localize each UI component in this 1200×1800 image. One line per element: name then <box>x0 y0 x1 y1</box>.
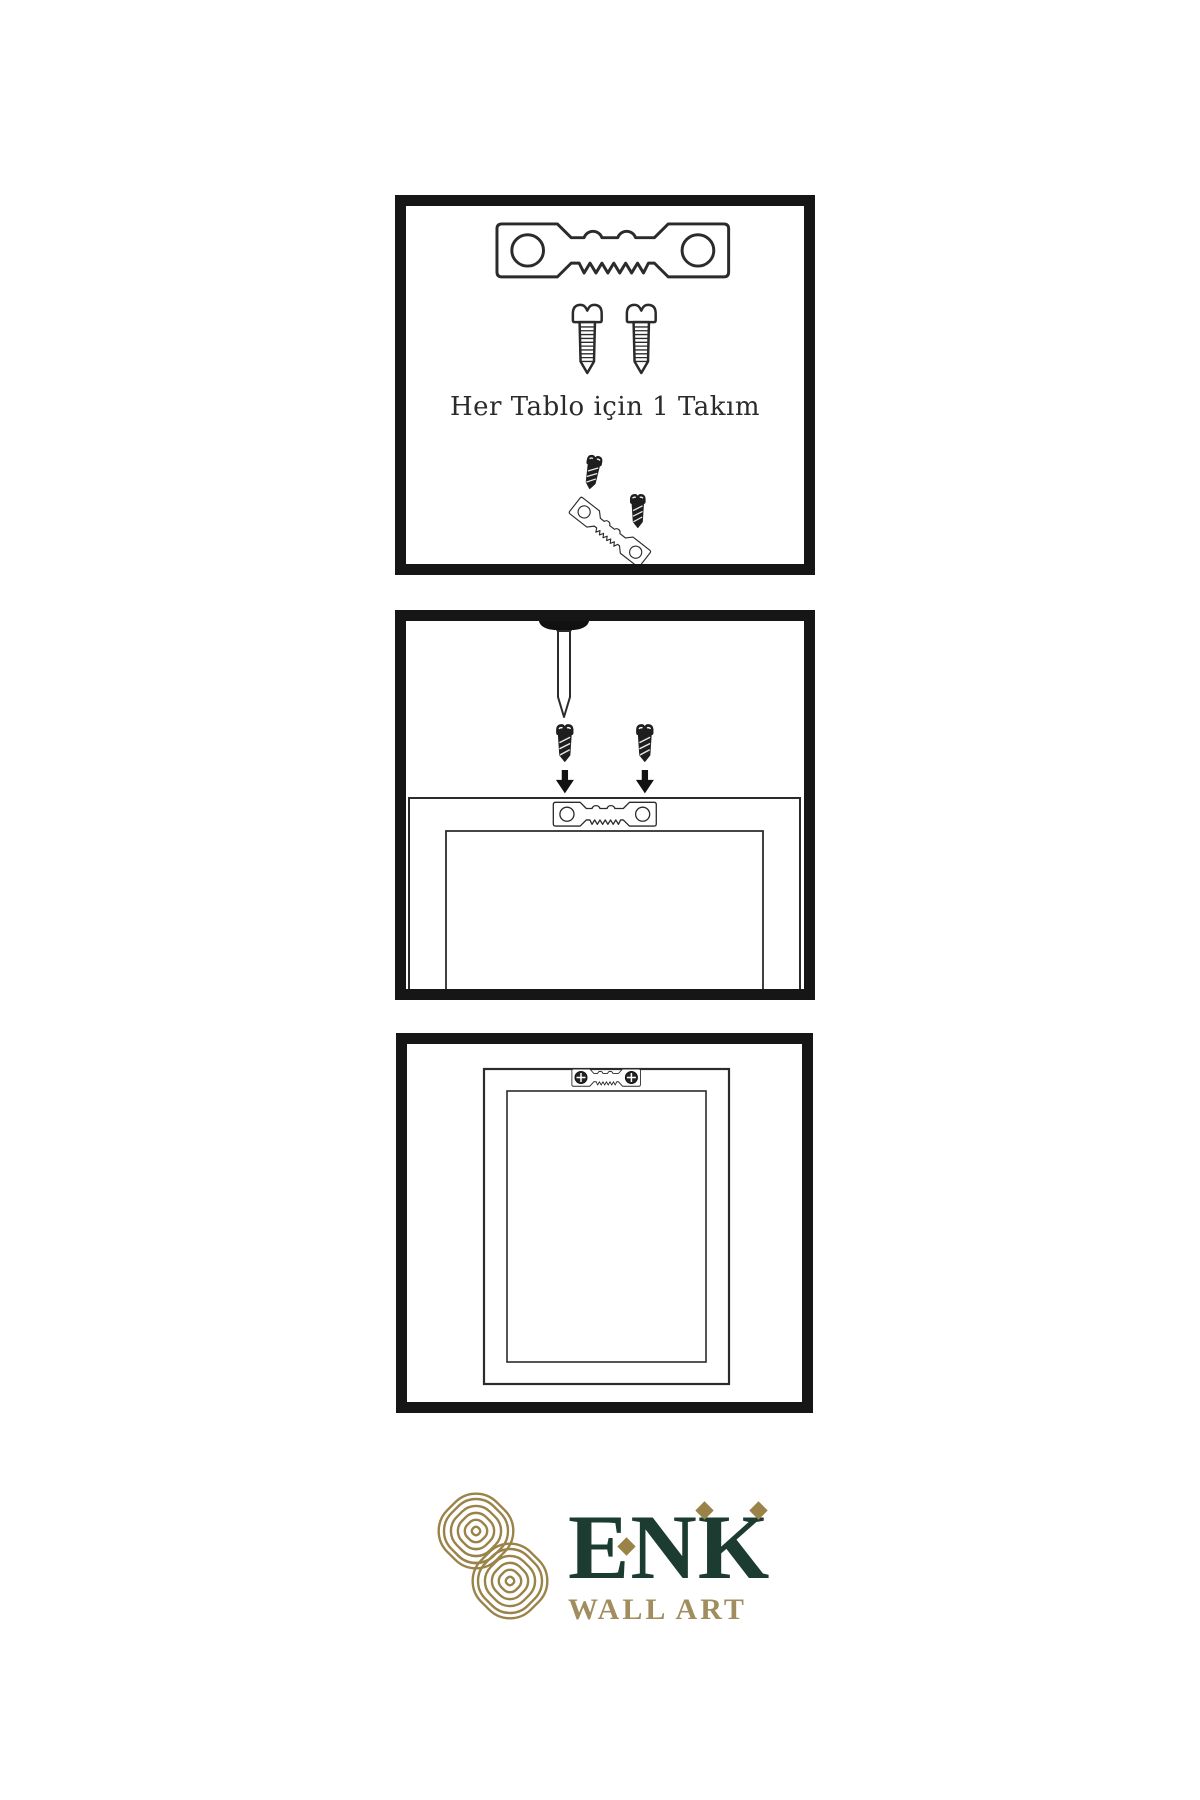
brand-logo: ENK WALL ART <box>430 1488 770 1627</box>
kit-caption: Her Tablo için 1 Takım <box>406 392 804 422</box>
panel-mounting-steps <box>395 610 815 1000</box>
frame-front-icon <box>484 1069 729 1384</box>
sawtooth-hanger-icon <box>497 224 729 277</box>
screw-icon <box>627 305 656 373</box>
dark-screw-icon <box>583 455 603 490</box>
dark-screw-icon <box>637 725 653 761</box>
panel-hardware-kit: Her Tablo için 1 Takım <box>395 195 815 575</box>
arrow-down-icon <box>636 770 654 793</box>
instruction-sheet: Her Tablo için 1 Takım <box>0 0 1200 1800</box>
frame-back-icon <box>409 798 800 989</box>
dark-screw-icon <box>631 495 645 528</box>
brand-text: ENK WALL ART <box>568 1488 770 1627</box>
phillips-screw-icon <box>575 1072 587 1084</box>
dark-screw-icon <box>557 725 573 761</box>
arrow-down-icon <box>556 770 574 793</box>
phillips-screw-icon <box>625 1072 637 1084</box>
panel-hung-frame <box>396 1033 813 1413</box>
knot-logo-icon <box>430 1488 556 1626</box>
brand-subtitle: WALL ART <box>568 1593 770 1627</box>
screw-icon <box>573 305 602 373</box>
brand-name: ENK <box>568 1508 770 1587</box>
wall-nail-icon <box>539 621 589 717</box>
